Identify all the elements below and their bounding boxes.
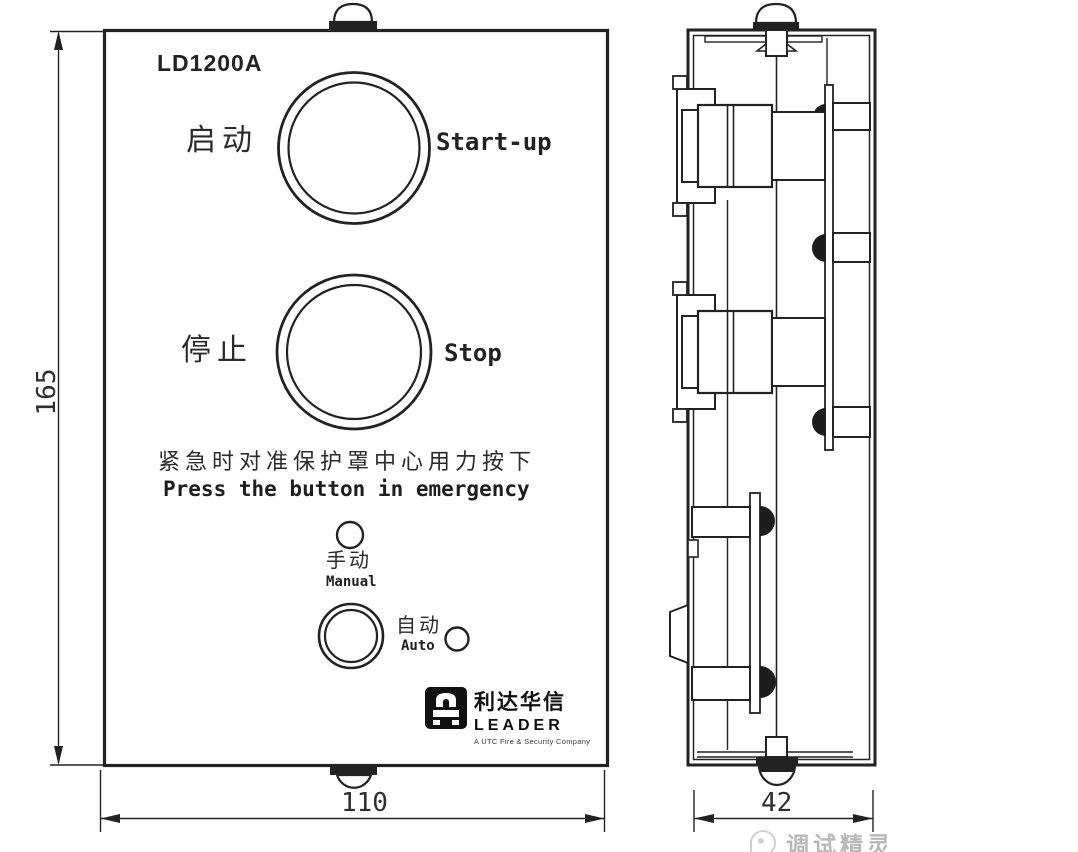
brand-name-cn: 利达华信 bbox=[474, 686, 566, 716]
model-label: LD1200A bbox=[157, 52, 262, 75]
front-top-screw-icon bbox=[329, 4, 377, 30]
brand-logo: 利达华信 LEADER A UTC Fire & Security Compan… bbox=[424, 686, 590, 746]
dimension-height: 165 bbox=[34, 363, 60, 421]
emergency-note-en: Press the button in emergency bbox=[163, 479, 530, 500]
mounting-plate bbox=[825, 85, 833, 450]
leader-logo-icon bbox=[424, 686, 468, 730]
auto-label-en: Auto bbox=[401, 639, 435, 653]
watermark-icon bbox=[750, 830, 776, 852]
side-top-screw-icon bbox=[753, 4, 799, 56]
stop-label-cn: 停止 bbox=[181, 336, 253, 366]
manual-label-cn: 手动 bbox=[326, 551, 372, 571]
keyswitch-protrusion bbox=[670, 605, 688, 663]
stop-label-en: Stop bbox=[444, 341, 502, 365]
dimension-width: 110 bbox=[341, 790, 388, 816]
watermark-text: 调试精灵 bbox=[786, 826, 894, 852]
front-bottom-screw-icon bbox=[330, 765, 377, 788]
side-view bbox=[670, 4, 875, 832]
start-label-en: Start-up bbox=[436, 130, 552, 154]
technical-drawing-page: LD1200A 启动 Start-up 停止 Stop 紧急时对准保护罩中心用力… bbox=[0, 0, 1078, 852]
dimension-depth: 42 bbox=[761, 790, 792, 816]
emergency-note-cn: 紧急时对准保护罩中心用力按下 bbox=[158, 451, 536, 473]
watermark: 调试精灵 bbox=[750, 826, 894, 852]
manual-label-en: Manual bbox=[326, 575, 377, 589]
brand-name-en: LEADER bbox=[474, 717, 564, 735]
start-label-cn: 启动 bbox=[186, 126, 258, 156]
brand-tagline: A UTC Fire & Security Company bbox=[474, 737, 590, 746]
auto-label-cn: 自动 bbox=[396, 616, 442, 636]
